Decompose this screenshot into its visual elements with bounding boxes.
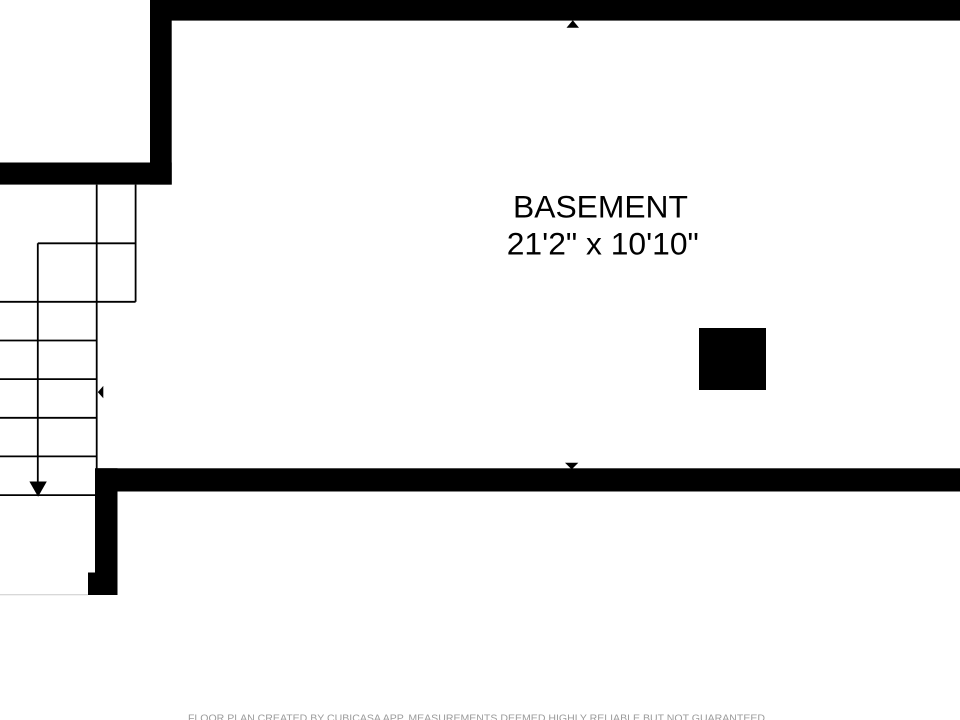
svg-text:21'2" x 10'10": 21'2" x 10'10" (507, 226, 699, 262)
svg-text:BASEMENT: BASEMENT (513, 189, 688, 225)
svg-text:FLOOR PLAN CREATED BY CUBICASA: FLOOR PLAN CREATED BY CUBICASA APP. MEAS… (188, 713, 765, 720)
